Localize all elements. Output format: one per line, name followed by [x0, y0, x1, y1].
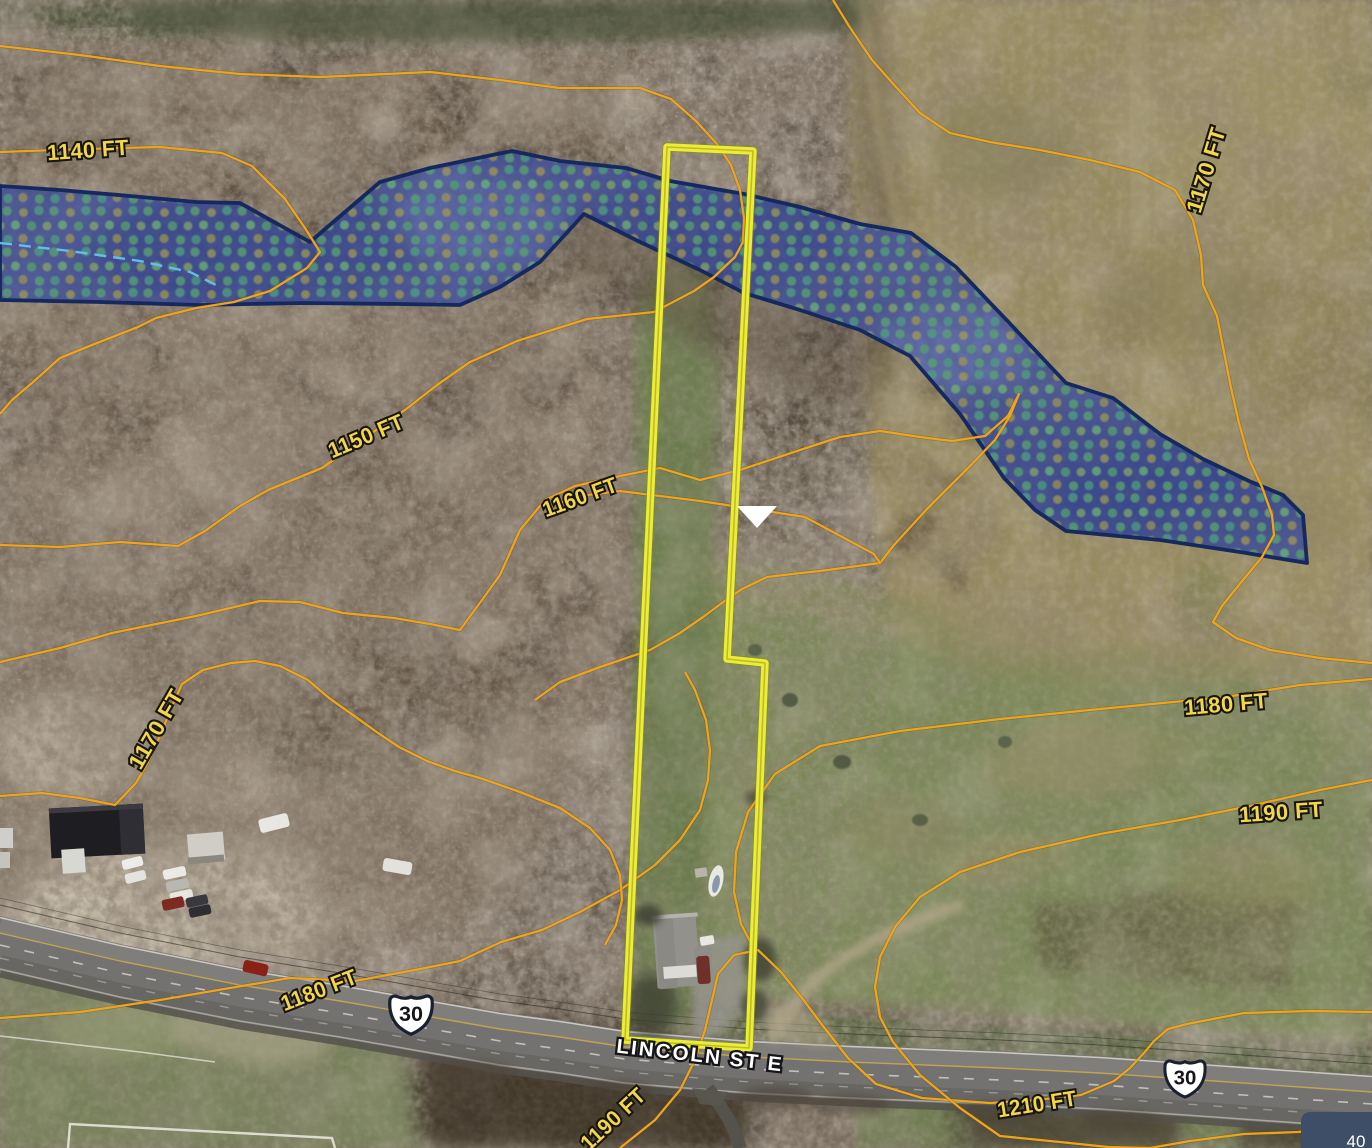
svg-text:30: 30 — [1174, 1068, 1197, 1090]
svg-text:40: 40 — [1347, 1132, 1366, 1148]
svg-text:30: 30 — [399, 1001, 423, 1026]
